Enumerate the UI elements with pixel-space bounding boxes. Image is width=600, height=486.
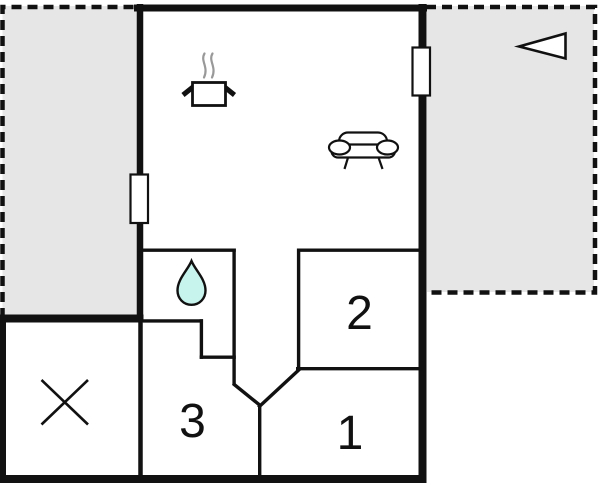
room-2-label: 2 [346, 287, 373, 340]
room-1-label: 1 [337, 407, 364, 460]
house-floor-annex [0, 315, 143, 483]
sofa-armrest-left [329, 141, 350, 155]
room-3-label: 3 [179, 395, 206, 448]
terrace-right [425, 6, 595, 293]
sofa-armrest-right [377, 141, 398, 155]
terrace-left [3, 6, 138, 318]
window-right [413, 48, 431, 96]
pot-body [193, 83, 226, 106]
terrace-left-floor [3, 6, 138, 317]
terrace-right-floor [425, 6, 594, 292]
window-left [131, 175, 149, 224]
floor-plan: 1 2 3 [0, 0, 600, 486]
